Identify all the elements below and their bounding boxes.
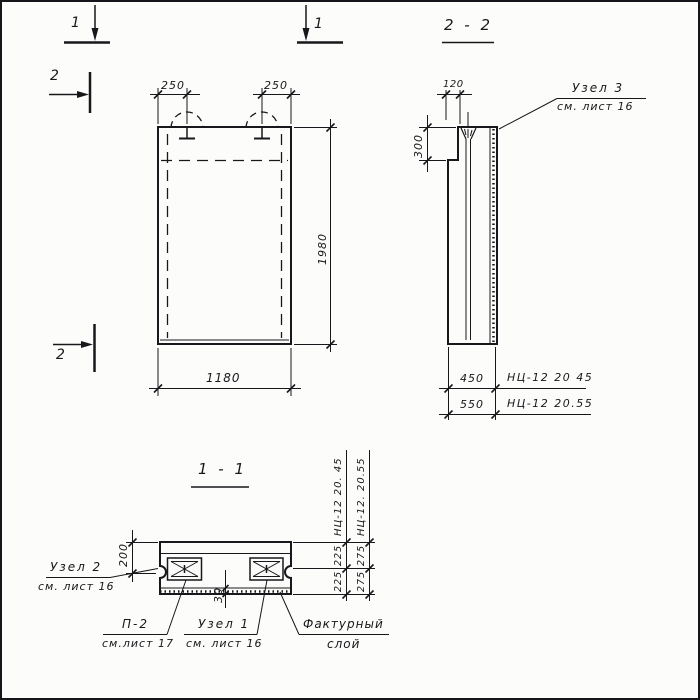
node-1-ref: см. лист 16 [186,637,262,650]
mark-450-designation: НЦ-12 20 45 [507,371,593,384]
node-2-label: Узел 2 [50,560,102,574]
node-3-label: Узел 3 [572,81,624,95]
dim-275-top: 275 [356,545,367,566]
drawing-sheet: 1 1 2 2 250 250 1980 1180 2 - 2 120 300 … [0,0,700,700]
node-3-ref: см. лист 16 [557,100,633,113]
front-view [149,88,337,396]
mark-550-designation: НЦ-12 20.55 [507,397,593,410]
dim-550: 550 [460,398,484,411]
section-1-1-title: 1 - 1 [198,460,247,478]
dim-1180: 1180 [206,371,241,385]
node-1-label: Узел 1 [198,617,250,631]
col-45-designation: НЦ-12 20. 45 [333,457,344,536]
p2-ref: см.лист 17 [102,637,174,650]
channel-void-left [168,558,202,580]
dim-1980: 1980 [316,233,329,265]
cut-mark-2-bottom-label: 2 [56,347,65,363]
col-55-designation: НЦ-12. 20.55 [356,457,367,536]
channel-void-right [250,558,283,580]
dim-225-top: 225 [333,545,344,566]
dim-275-bottom: 275 [356,571,367,592]
cut-mark-2-top-label: 2 [50,68,59,84]
section-cut-markers [49,5,343,372]
dim-450: 450 [460,372,484,385]
cut-mark-1-right-label: 1 [314,16,323,32]
dim-120: 120 [443,79,464,90]
dim-30: 30 [212,587,225,603]
node-2-ref: см. лист 16 [38,580,114,593]
dim-250-left: 250 [161,79,185,92]
dim-200: 200 [117,543,130,567]
texture-layer-label-line2: слой [327,637,360,651]
dim-250-right: 250 [264,79,288,92]
section-2-2-title: 2 - 2 [444,16,493,34]
cut-mark-1-left-label: 1 [71,15,80,31]
texture-layer-label-line1: Фактурный [303,617,384,631]
dim-300: 300 [412,134,425,158]
p2-label: П-2 [122,617,149,631]
dim-225-bottom: 225 [333,571,344,592]
